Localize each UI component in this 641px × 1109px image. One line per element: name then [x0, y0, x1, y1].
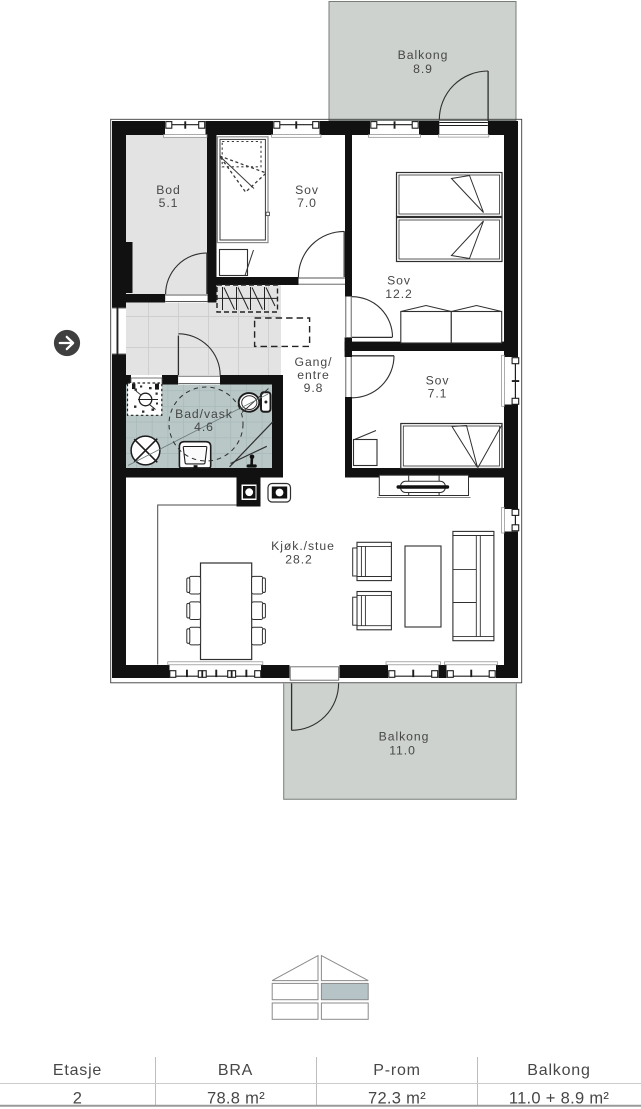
- svg-text:P-rom: P-rom: [373, 1062, 421, 1079]
- svg-text:Bod: Bod: [156, 183, 181, 197]
- svg-text:Gang/: Gang/: [295, 355, 333, 369]
- svg-text:7.0: 7.0: [297, 196, 317, 210]
- svg-text:Balkong: Balkong: [398, 48, 449, 62]
- svg-text:Bad/vask: Bad/vask: [175, 407, 233, 421]
- svg-text:2: 2: [73, 1090, 82, 1108]
- svg-text:5.1: 5.1: [159, 196, 179, 210]
- svg-text:Balkong: Balkong: [527, 1062, 590, 1079]
- svg-text:4.6: 4.6: [194, 420, 214, 434]
- svg-text:Balkong: Balkong: [379, 730, 430, 744]
- svg-text:Etasje: Etasje: [53, 1062, 102, 1079]
- svg-text:9.8: 9.8: [304, 381, 324, 395]
- svg-text:11.0: 11.0: [389, 744, 416, 758]
- svg-text:Kjøk./stue: Kjøk./stue: [271, 539, 335, 553]
- svg-text:78.8 m²: 78.8 m²: [207, 1090, 265, 1108]
- svg-text:Sov: Sov: [295, 183, 319, 197]
- svg-text:28.2: 28.2: [285, 553, 313, 567]
- svg-text:72.3 m²: 72.3 m²: [368, 1090, 426, 1108]
- svg-text:8.9: 8.9: [413, 62, 433, 76]
- svg-text:12.2: 12.2: [385, 287, 413, 301]
- svg-text:7.1: 7.1: [428, 386, 448, 400]
- svg-text:BRA: BRA: [218, 1062, 253, 1079]
- svg-text:11.0 + 8.9 m²: 11.0 + 8.9 m²: [509, 1090, 610, 1108]
- svg-text:Sov: Sov: [387, 273, 411, 287]
- svg-text:Sov: Sov: [426, 373, 450, 387]
